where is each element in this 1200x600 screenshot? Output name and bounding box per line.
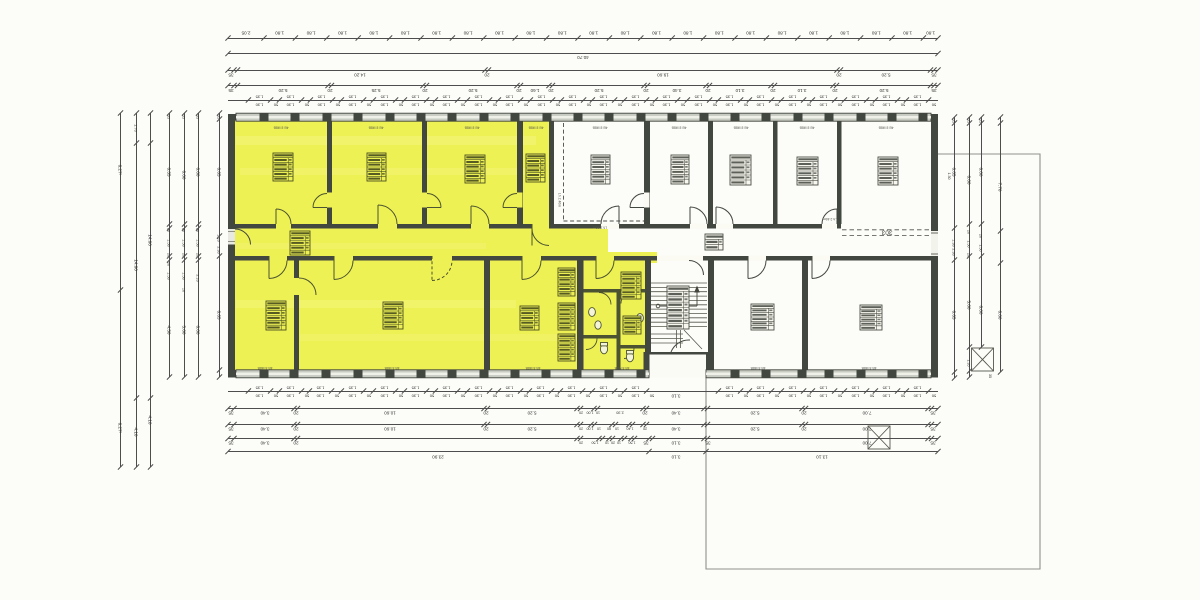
svg-text:6.00: 6.00 (979, 168, 984, 177)
svg-text:5.20: 5.20 (750, 427, 759, 432)
svg-text:1.30: 1.30 (348, 103, 357, 108)
svg-text:20: 20 (484, 73, 490, 78)
svg-text:6.65: 6.65 (952, 311, 957, 320)
svg-text:20: 20 (579, 427, 583, 431)
svg-text:1.30: 1.30 (316, 394, 325, 399)
svg-text:10.60: 10.60 (384, 411, 396, 416)
svg-text:50: 50 (869, 103, 874, 108)
svg-text:20: 20 (836, 73, 842, 78)
svg-text:4B 8 M8B: 4B 8 M8B (257, 366, 273, 370)
svg-text:1.35: 1.35 (411, 385, 420, 390)
svg-text:Lh 2.46m: Lh 2.46m (823, 217, 837, 221)
svg-text:50: 50 (304, 103, 309, 108)
svg-text:10: 10 (615, 427, 619, 431)
svg-text:50: 50 (366, 103, 371, 108)
svg-text:6.00: 6.00 (998, 311, 1003, 320)
svg-text:4B 8 M8B: 4B 8 M8B (273, 126, 289, 130)
svg-text:35: 35 (931, 73, 937, 78)
svg-text:20: 20 (483, 427, 489, 432)
svg-text:20: 20 (167, 228, 171, 232)
svg-text:14.60: 14.60 (148, 234, 153, 246)
svg-text:1.30: 1.30 (380, 103, 389, 108)
svg-text:1.80: 1.80 (809, 31, 818, 36)
svg-text:1.35: 1.35 (819, 94, 828, 99)
svg-text:1.80: 1.80 (926, 31, 935, 36)
svg-text:50: 50 (743, 103, 748, 108)
svg-text:50: 50 (334, 394, 339, 399)
svg-text:1.30: 1.30 (819, 394, 828, 399)
svg-text:1.10: 1.10 (217, 234, 221, 241)
svg-text:1.35: 1.35 (882, 385, 891, 390)
svg-text:50: 50 (586, 103, 591, 108)
svg-text:1.80: 1.80 (369, 31, 378, 36)
svg-text:1.80: 1.80 (400, 31, 409, 36)
svg-text:50: 50 (304, 394, 309, 399)
svg-text:1.30: 1.30 (317, 103, 326, 108)
svg-text:1.80: 1.80 (746, 31, 755, 36)
svg-text:35: 35 (967, 119, 971, 123)
svg-text:1.80: 1.80 (557, 31, 566, 36)
svg-text:35: 35 (930, 427, 936, 432)
svg-text:50: 50 (617, 103, 622, 108)
svg-text:50: 50 (273, 394, 278, 399)
svg-text:1.30: 1.30 (411, 103, 420, 108)
svg-text:20: 20 (967, 253, 971, 257)
svg-text:1.50: 1.50 (629, 441, 636, 445)
svg-text:1.50: 1.50 (167, 272, 171, 279)
svg-text:1.60: 1.60 (530, 88, 539, 93)
svg-text:1.35: 1.35 (694, 94, 703, 99)
svg-text:1.35: 1.35 (286, 385, 295, 390)
svg-text:1.35: 1.35 (819, 385, 828, 390)
svg-text:1.30: 1.30 (536, 394, 545, 399)
svg-text:50: 50 (335, 103, 340, 108)
svg-text:5.20: 5.20 (881, 73, 890, 78)
svg-text:1.80: 1.80 (432, 31, 441, 36)
svg-text:1.30: 1.30 (725, 103, 734, 108)
svg-text:20: 20 (483, 411, 489, 416)
svg-text:5.00: 5.00 (182, 326, 187, 335)
svg-text:5.20: 5.20 (750, 411, 759, 416)
svg-text:3.10: 3.10 (671, 455, 680, 460)
svg-text:35: 35 (228, 441, 234, 446)
svg-text:50: 50 (554, 394, 559, 399)
svg-text:35: 35 (217, 115, 221, 119)
svg-text:3.40: 3.40 (671, 411, 680, 416)
svg-text:4.10: 4.10 (134, 428, 139, 437)
svg-text:7.00: 7.00 (862, 441, 871, 446)
svg-text:4B 8 M8B: 4B 8 M8B (878, 126, 894, 130)
svg-text:1.00: 1.00 (587, 411, 594, 415)
svg-text:35: 35 (705, 441, 711, 446)
svg-text:7.70: 7.70 (998, 183, 1003, 192)
svg-text:1.35: 1.35 (913, 385, 922, 390)
svg-text:20: 20 (801, 427, 807, 432)
svg-text:1.35: 1.35 (725, 94, 734, 99)
svg-text:20: 20 (548, 88, 554, 93)
svg-text:1.30: 1.30 (599, 103, 608, 108)
svg-text:1.50: 1.50 (182, 239, 186, 246)
svg-text:50: 50 (931, 394, 936, 399)
svg-text:5.20: 5.20 (879, 88, 888, 93)
svg-text:1.35: 1.35 (411, 94, 420, 99)
svg-text:1.30: 1.30 (568, 103, 577, 108)
svg-text:1.35: 1.35 (380, 94, 389, 99)
svg-text:50: 50 (900, 394, 905, 399)
svg-text:35: 35 (228, 73, 234, 78)
svg-text:35: 35 (228, 411, 234, 416)
svg-text:20: 20 (979, 234, 983, 238)
svg-text:1.80: 1.80 (871, 31, 880, 36)
svg-text:50: 50 (774, 394, 779, 399)
svg-text:6.00: 6.00 (182, 171, 187, 180)
svg-text:50: 50 (429, 103, 434, 108)
svg-text:20: 20 (293, 427, 299, 432)
svg-text:7.00: 7.00 (862, 427, 871, 432)
svg-text:1.30: 1.30 (442, 103, 451, 108)
svg-text:4B 8 M8B: 4B 8 M8B (861, 366, 877, 370)
svg-text:1.35: 1.35 (380, 385, 389, 390)
svg-text:1.35: 1.35 (882, 94, 891, 99)
svg-text:1.30: 1.30 (286, 394, 295, 399)
svg-text:20: 20 (293, 411, 299, 416)
svg-text:50: 50 (460, 103, 465, 108)
svg-text:1.35: 1.35 (537, 94, 546, 99)
svg-text:20: 20 (167, 253, 171, 257)
svg-text:3.40: 3.40 (672, 88, 681, 93)
svg-text:1.30: 1.30 (952, 239, 956, 246)
svg-text:50: 50 (492, 103, 497, 108)
svg-text:1.70: 1.70 (134, 124, 139, 133)
svg-text:1.50: 1.50 (592, 441, 599, 445)
svg-text:1.35: 1.35 (568, 94, 577, 99)
svg-text:2.05: 2.05 (241, 31, 250, 36)
svg-text:20: 20 (705, 88, 711, 93)
svg-text:20: 20 (293, 441, 299, 446)
svg-text:20: 20 (643, 88, 649, 93)
svg-text:50: 50 (869, 394, 874, 399)
svg-text:1.35: 1.35 (255, 94, 264, 99)
svg-text:5.20: 5.20 (527, 411, 536, 416)
svg-text:1.50: 1.50 (182, 272, 186, 279)
svg-text:1.30: 1.30 (380, 394, 389, 399)
svg-text:1.30: 1.30 (286, 103, 295, 108)
svg-text:1.35: 1.35 (255, 385, 264, 390)
svg-text:1.35: 1.35 (317, 94, 326, 99)
svg-text:1.80: 1.80 (463, 31, 472, 36)
svg-text:303: 303 (881, 229, 892, 236)
svg-text:10: 10 (597, 427, 601, 431)
svg-text:6.00: 6.00 (967, 176, 972, 185)
svg-text:14.60: 14.60 (134, 259, 139, 271)
svg-text:50: 50 (900, 103, 905, 108)
svg-text:50: 50 (460, 394, 465, 399)
svg-text:23.90: 23.90 (432, 455, 444, 460)
svg-text:1.30: 1.30 (788, 394, 797, 399)
svg-text:1.35: 1.35 (631, 385, 640, 390)
svg-text:1.30: 1.30 (756, 394, 765, 399)
svg-text:1.30: 1.30 (694, 103, 703, 108)
svg-text:6.00: 6.00 (979, 306, 984, 315)
svg-text:40.70: 40.70 (577, 55, 589, 60)
svg-text:1.35: 1.35 (567, 385, 576, 390)
svg-text:10: 10 (617, 441, 621, 445)
svg-text:10: 10 (182, 288, 186, 292)
svg-text:1.40: 1.40 (627, 427, 634, 431)
svg-text:50: 50 (680, 103, 685, 108)
svg-text:35: 35 (167, 115, 171, 119)
svg-text:1.80: 1.80 (306, 31, 315, 36)
svg-text:1.30: 1.30 (411, 394, 420, 399)
svg-text:1.50: 1.50 (967, 241, 971, 248)
svg-text:6.65: 6.65 (217, 311, 222, 320)
svg-text:1.35: 1.35 (913, 94, 922, 99)
svg-text:1.30: 1.30 (819, 103, 828, 108)
svg-text:1.35: 1.35 (286, 94, 295, 99)
svg-text:20: 20 (579, 411, 583, 415)
svg-text:4B 8 M8B: 4B 8 M8B (733, 126, 749, 130)
svg-text:1.50: 1.50 (979, 245, 983, 252)
svg-text:1.35: 1.35 (725, 385, 734, 390)
svg-text:1.35: 1.35 (599, 94, 608, 99)
svg-text:14.20: 14.20 (354, 73, 366, 78)
svg-text:35: 35 (930, 441, 936, 446)
svg-text:50: 50 (273, 103, 278, 108)
svg-text:50: 50 (837, 103, 842, 108)
svg-text:6.65: 6.65 (217, 168, 222, 177)
svg-text:13.10: 13.10 (816, 455, 828, 460)
svg-text:1.35: 1.35 (442, 94, 451, 99)
svg-text:3.10: 3.10 (671, 441, 680, 446)
svg-text:1.30: 1.30 (567, 394, 576, 399)
svg-text:1.30: 1.30 (255, 394, 264, 399)
svg-text:3.40: 3.40 (260, 411, 269, 416)
svg-text:35: 35 (643, 441, 649, 446)
svg-text:50: 50 (429, 394, 434, 399)
svg-text:1.30: 1.30 (725, 394, 734, 399)
svg-text:6.00: 6.00 (196, 326, 201, 335)
svg-text:35: 35 (228, 88, 234, 93)
svg-text:50: 50 (366, 394, 371, 399)
svg-text:50: 50 (743, 394, 748, 399)
svg-text:20: 20 (611, 441, 615, 445)
svg-text:1.30: 1.30 (851, 103, 860, 108)
svg-text:1.30: 1.30 (851, 394, 860, 399)
svg-text:1.50: 1.50 (196, 239, 200, 246)
svg-text:20: 20 (643, 427, 647, 431)
svg-text:5.20: 5.20 (278, 88, 287, 93)
svg-text:1.35: 1.35 (788, 385, 797, 390)
svg-text:1.30: 1.30 (631, 394, 640, 399)
svg-text:1.35: 1.35 (348, 94, 357, 99)
svg-text:1.80: 1.80 (275, 31, 284, 36)
svg-text:3.10: 3.10 (671, 394, 680, 399)
svg-text:6.35: 6.35 (167, 168, 172, 177)
svg-text:1.30: 1.30 (255, 103, 264, 108)
svg-text:1.35: 1.35 (756, 94, 765, 99)
svg-text:4B 8 M8B: 4B 8 M8B (528, 126, 544, 130)
svg-text:20: 20 (196, 228, 200, 232)
svg-text:50: 50 (398, 103, 403, 108)
svg-text:1.00: 1.00 (587, 427, 594, 431)
svg-text:1.80: 1.80 (683, 31, 692, 36)
svg-text:1.35: 1.35 (788, 94, 797, 99)
svg-text:1.80: 1.80 (338, 31, 347, 36)
svg-text:3.40: 3.40 (260, 441, 269, 446)
svg-text:20: 20 (642, 411, 648, 416)
svg-text:20: 20 (579, 441, 583, 445)
svg-text:50: 50 (523, 103, 528, 108)
svg-text:1.30: 1.30 (537, 103, 546, 108)
svg-text:1.30: 1.30 (913, 394, 922, 399)
svg-text:50: 50 (585, 394, 590, 399)
svg-text:50: 50 (398, 394, 403, 399)
svg-text:1.80: 1.80 (620, 31, 629, 36)
svg-text:20: 20 (516, 88, 522, 93)
svg-text:50: 50 (492, 394, 497, 399)
svg-text:6.27⁵: 6.27⁵ (118, 423, 123, 434)
svg-text:50: 50 (649, 394, 654, 399)
svg-text:4B 8 M8B: 4B 8 M8B (671, 126, 687, 130)
svg-text:4B 8 M8B: 4B 8 M8B (384, 366, 400, 370)
svg-text:2.30: 2.30 (616, 411, 623, 415)
svg-text:1.35: 1.35 (442, 385, 451, 390)
svg-text:Lh 2.46m: Lh 2.46m (558, 193, 562, 207)
svg-text:1.35: 1.35 (851, 385, 860, 390)
svg-text:4B 8 M8B: 4B 8 M8B (464, 126, 480, 130)
svg-text:35: 35 (979, 119, 983, 123)
svg-text:6.85: 6.85 (952, 168, 957, 177)
svg-text:1.80: 1.80 (903, 31, 912, 36)
svg-text:7.00: 7.00 (862, 411, 871, 416)
svg-text:1.35: 1.35 (474, 94, 483, 99)
svg-text:1.35: 1.35 (631, 94, 640, 99)
svg-text:10.60: 10.60 (384, 427, 396, 432)
svg-text:1.35: 1.35 (474, 385, 483, 390)
svg-text:1.35: 1.35 (662, 94, 671, 99)
svg-text:1.30: 1.30 (913, 103, 922, 108)
svg-text:35: 35 (952, 119, 956, 123)
svg-text:20: 20 (967, 230, 971, 234)
svg-text:2.10: 2.10 (196, 274, 200, 281)
svg-text:5.20: 5.20 (594, 88, 603, 93)
svg-text:35: 35 (228, 427, 234, 432)
svg-text:6.00: 6.00 (196, 168, 201, 177)
svg-text:5.20: 5.20 (468, 88, 477, 93)
svg-text:50: 50 (555, 103, 560, 108)
svg-text:1.30: 1.30 (474, 103, 483, 108)
svg-text:Lh 2.46m: Lh 2.46m (593, 226, 607, 230)
svg-text:20: 20 (770, 88, 776, 93)
svg-text:1.80: 1.80 (495, 31, 504, 36)
svg-text:10: 10 (605, 441, 609, 445)
svg-text:1.35: 1.35 (505, 94, 514, 99)
svg-text:4.50: 4.50 (167, 326, 172, 335)
svg-text:80: 80 (607, 427, 611, 431)
svg-text:50: 50 (806, 103, 811, 108)
svg-text:50: 50 (837, 394, 842, 399)
svg-text:1.30: 1.30 (348, 394, 357, 399)
svg-text:4B 8 M8B: 4B 8 M8B (592, 126, 608, 130)
svg-text:50: 50 (774, 103, 779, 108)
svg-text:4.10: 4.10 (148, 416, 153, 425)
svg-text:1.35: 1.35 (851, 94, 860, 99)
svg-text:35: 35 (988, 374, 992, 378)
svg-text:1.30: 1.30 (505, 394, 514, 399)
svg-text:1.35: 1.35 (599, 385, 608, 390)
svg-text:50: 50 (931, 103, 936, 108)
svg-text:50: 50 (649, 103, 654, 108)
svg-text:1.30: 1.30 (756, 103, 765, 108)
svg-text:4B 8 M8B: 4B 8 M8B (750, 366, 766, 370)
svg-text:1.30: 1.30 (947, 173, 951, 180)
svg-text:1.80: 1.80 (714, 31, 723, 36)
svg-text:1.35: 1.35 (967, 360, 971, 367)
svg-text:3.10: 3.10 (797, 88, 806, 93)
svg-text:1.35: 1.35 (756, 385, 765, 390)
svg-text:20: 20 (196, 253, 200, 257)
svg-text:1.80: 1.80 (777, 31, 786, 36)
svg-text:5.25: 5.25 (371, 88, 380, 93)
svg-text:5.00: 5.00 (967, 301, 972, 310)
svg-text:20: 20 (801, 411, 807, 416)
svg-text:1.30: 1.30 (599, 394, 608, 399)
svg-text:35: 35 (931, 88, 937, 93)
svg-text:20: 20 (167, 262, 171, 266)
svg-text:35: 35 (930, 411, 936, 416)
svg-text:1.30: 1.30 (631, 103, 640, 108)
svg-text:4B 8 M8B: 4B 8 M8B (525, 366, 541, 370)
svg-text:1.35: 1.35 (536, 385, 545, 390)
svg-text:1.35: 1.35 (505, 385, 514, 390)
svg-text:20: 20 (182, 228, 186, 232)
svg-text:1.80: 1.80 (589, 31, 598, 36)
svg-text:20: 20 (182, 253, 186, 257)
svg-text:1.50: 1.50 (167, 239, 171, 246)
svg-text:50: 50 (617, 394, 622, 399)
svg-text:3.40: 3.40 (671, 427, 680, 432)
svg-text:20: 20 (422, 88, 428, 93)
svg-text:1.30: 1.30 (882, 394, 891, 399)
svg-text:6.27⁵: 6.27⁵ (118, 165, 123, 176)
svg-text:50: 50 (523, 394, 528, 399)
svg-text:1.30: 1.30 (788, 103, 797, 108)
svg-text:4B 8 M8B: 4B 8 M8B (799, 126, 815, 130)
svg-text:1.30: 1.30 (474, 394, 483, 399)
svg-text:20: 20 (832, 88, 838, 93)
svg-text:2.30: 2.30 (952, 248, 956, 255)
svg-text:35: 35 (182, 115, 186, 119)
svg-text:50: 50 (806, 394, 811, 399)
svg-text:10: 10 (596, 411, 600, 415)
svg-text:1.35: 1.35 (316, 385, 325, 390)
svg-text:1.30: 1.30 (505, 103, 514, 108)
svg-text:4B 8 M8B: 4B 8 M8B (614, 366, 630, 370)
svg-text:1.35: 1.35 (348, 385, 357, 390)
svg-text:35: 35 (196, 115, 200, 119)
svg-text:2.30: 2.30 (217, 246, 221, 253)
svg-text:50: 50 (712, 103, 717, 108)
svg-text:1.80: 1.80 (652, 31, 661, 36)
svg-text:4B 8 M8B: 4B 8 M8B (368, 126, 384, 130)
svg-text:1.80: 1.80 (526, 31, 535, 36)
svg-text:19.60: 19.60 (657, 73, 669, 78)
svg-text:3.10: 3.10 (735, 88, 744, 93)
svg-text:1.30: 1.30 (442, 394, 451, 399)
svg-text:20: 20 (327, 88, 333, 93)
svg-text:5.20: 5.20 (527, 427, 536, 432)
svg-text:1.30: 1.30 (662, 103, 671, 108)
